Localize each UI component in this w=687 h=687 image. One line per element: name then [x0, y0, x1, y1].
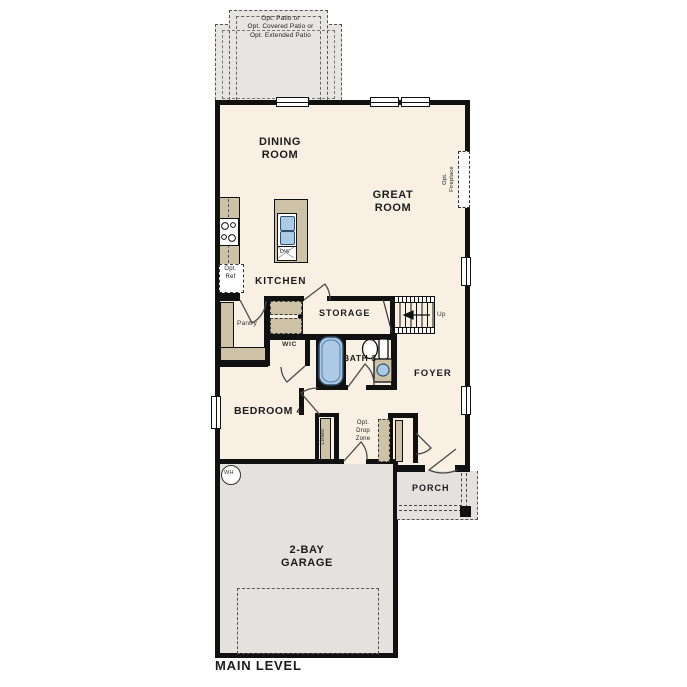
pantry-label: Pantry [237, 320, 257, 328]
stair-treads [393, 303, 435, 327]
wall-bath-bottom-right [366, 385, 393, 390]
staircase [393, 296, 435, 334]
linen-label: Linen [320, 422, 328, 452]
wall-wic-right [305, 340, 310, 366]
wall-bath-right [391, 334, 397, 390]
fireplace-label: Opt. Fireplace [442, 155, 456, 203]
garage-line2: GARAGE [281, 557, 333, 569]
fireplace-label-line2: Fireplace [449, 166, 455, 192]
kitchen-label: KITCHEN [255, 276, 306, 288]
floor-plan: Opt. Patio or Opt. Covered Patio or Opt.… [0, 0, 687, 687]
water-heater-label: WH [224, 470, 234, 477]
garage-apron-dashed [237, 588, 379, 654]
porch-roofline-h [399, 505, 462, 511]
window-top-2 [370, 97, 399, 107]
great-room-label: GREAT ROOM [366, 189, 420, 214]
dropzone-line1: Opt. [357, 420, 369, 426]
dishwasher-label: DW [280, 249, 290, 256]
window-left-bedroom4 [211, 396, 221, 429]
porch-post [460, 506, 471, 517]
opt-ref-label: Opt. Ref [219, 266, 242, 282]
opt-ref-line2: Ref [226, 274, 236, 280]
stair-rail-bottom [393, 327, 435, 334]
porch-label: PORCH [412, 483, 450, 493]
window-right-greatroom [461, 257, 471, 286]
dropzone-line3: Zone [356, 436, 370, 442]
patio-label-line2: Opt. Covered Patio or [247, 23, 313, 30]
wall-pantry-bottom [218, 360, 268, 367]
dining-line1: DINING [259, 136, 301, 148]
garage-line1: 2-BAY [290, 544, 325, 556]
wall-storage-top [327, 296, 393, 301]
main-level-title: MAIN LEVEL [215, 659, 302, 674]
tub-alcove [316, 334, 346, 388]
wall-closet-right [413, 413, 418, 463]
opt-ref-line1: Opt. [224, 266, 236, 272]
stair-rail-top [393, 296, 435, 303]
fireplace-dashed-box [458, 151, 470, 208]
dropzone-line2: Drop [356, 428, 370, 434]
great-line2: ROOM [375, 202, 412, 214]
patio-label-line3: Opt. Extended Patio [250, 32, 311, 39]
storage-label: STORAGE [319, 308, 370, 318]
patio-label: Opt. Patio or Opt. Covered Patio or Opt.… [233, 15, 328, 40]
stairs-up-label: Up [437, 311, 446, 319]
foyer-label: FOYER [414, 369, 452, 380]
window-top-1 [276, 97, 309, 107]
bath3-label: BATH 3 [343, 354, 377, 364]
garage-door-opening [344, 459, 366, 464]
bedroom4-label: BEDROOM 4 [234, 405, 303, 417]
wall-linen-left [315, 413, 319, 459]
wall-linen-right [334, 413, 339, 459]
wic-label: WIC [282, 341, 297, 349]
cooktop [219, 218, 239, 246]
pantry-shelf-bottom [220, 347, 266, 361]
patio-label-line1: Opt. Patio or [261, 15, 299, 22]
fireplace-label-line1: Opt. [442, 173, 448, 185]
window-top-3 [401, 97, 430, 107]
island-sink-basin-1 [280, 216, 295, 231]
dropzone-bench [378, 419, 390, 462]
dining-room-label: DINING ROOM [253, 136, 307, 161]
garage-label: 2-BAY GARAGE [272, 544, 342, 569]
wall-foyer-bottom-left [397, 465, 425, 472]
entry-closet-shelf [395, 420, 403, 462]
wall-pantry-top [219, 296, 240, 301]
island-sink-basin-2 [280, 231, 295, 245]
cabinet-kitchen-storage [270, 301, 302, 315]
patio-inner-outline [222, 30, 335, 99]
window-right-foyer [461, 386, 471, 415]
great-line1: GREAT [373, 189, 414, 201]
dropzone-label: Opt. Drop Zone [349, 420, 377, 443]
dining-line2: ROOM [262, 149, 299, 161]
cabinet-wic-upper [270, 318, 302, 334]
wall-foyer-bottom-right [455, 465, 470, 472]
